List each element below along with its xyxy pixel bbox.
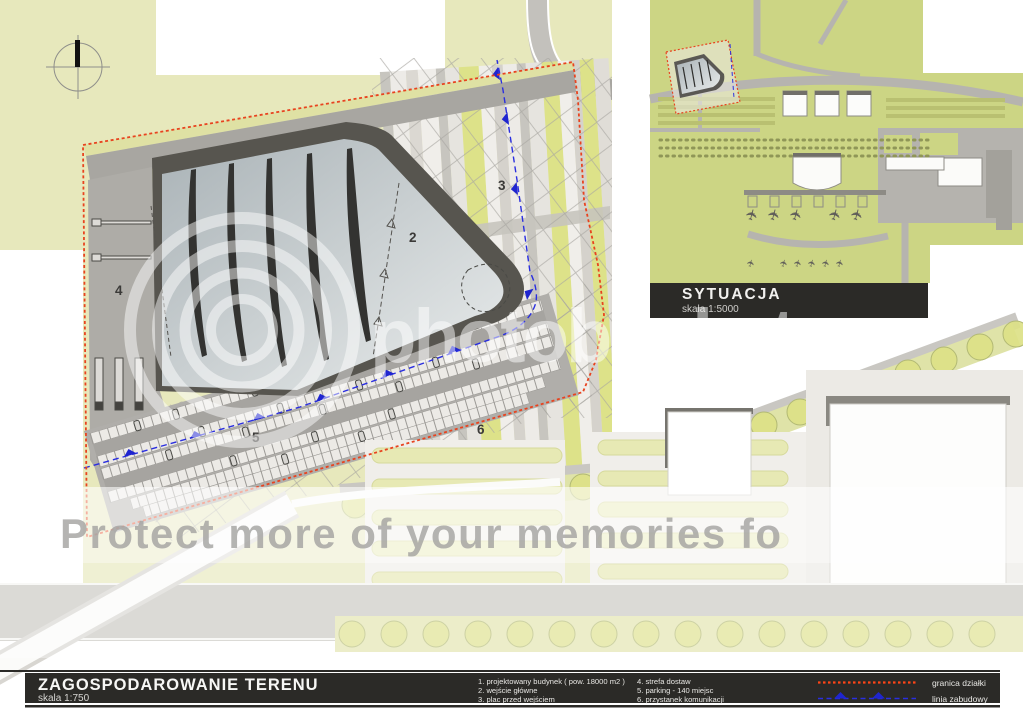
label-zone-2: 2 [409,230,417,245]
legend-bar: ZAGOSPODAROWANIE TERENU skala 1:750 1. p… [0,670,1000,708]
small-building [668,412,751,495]
legend-label-boundary: granica działki [932,678,986,688]
legend-label-building-line: linia zabudowy [932,694,989,704]
label-zone-3: 3 [498,178,506,193]
inset-project-site [666,40,740,114]
label-zone-4: 4 [115,283,123,298]
sheet-canvas: ✈ [0,0,1023,713]
legend-item-2: 2. wejście główne [478,686,538,695]
legend-item-3: 3. plac przed wejściem [478,695,555,704]
page-gap [612,55,652,455]
sheet-title: ZAGOSPODAROWANIE TERENU [38,676,319,694]
legend-item-4: 4. strefa dostaw [637,677,691,686]
legend-item-1: 1. projektowany budynek ( pow. 18000 m2 … [478,677,625,686]
legend-item-6: 6. przystanek komunikacji [637,695,724,704]
site-plan-sheet: ✈ [0,0,1023,713]
inset-gray-building [986,150,1012,230]
label-zone-6: 6 [477,422,485,437]
legend-item-5: 5. parking - 140 miejsc [637,686,714,695]
watermark-brand: photobucket [370,294,796,379]
sheet-scale: skala 1:750 [38,693,90,704]
watermark-tagline: Protect more of your memories fo [60,510,782,557]
